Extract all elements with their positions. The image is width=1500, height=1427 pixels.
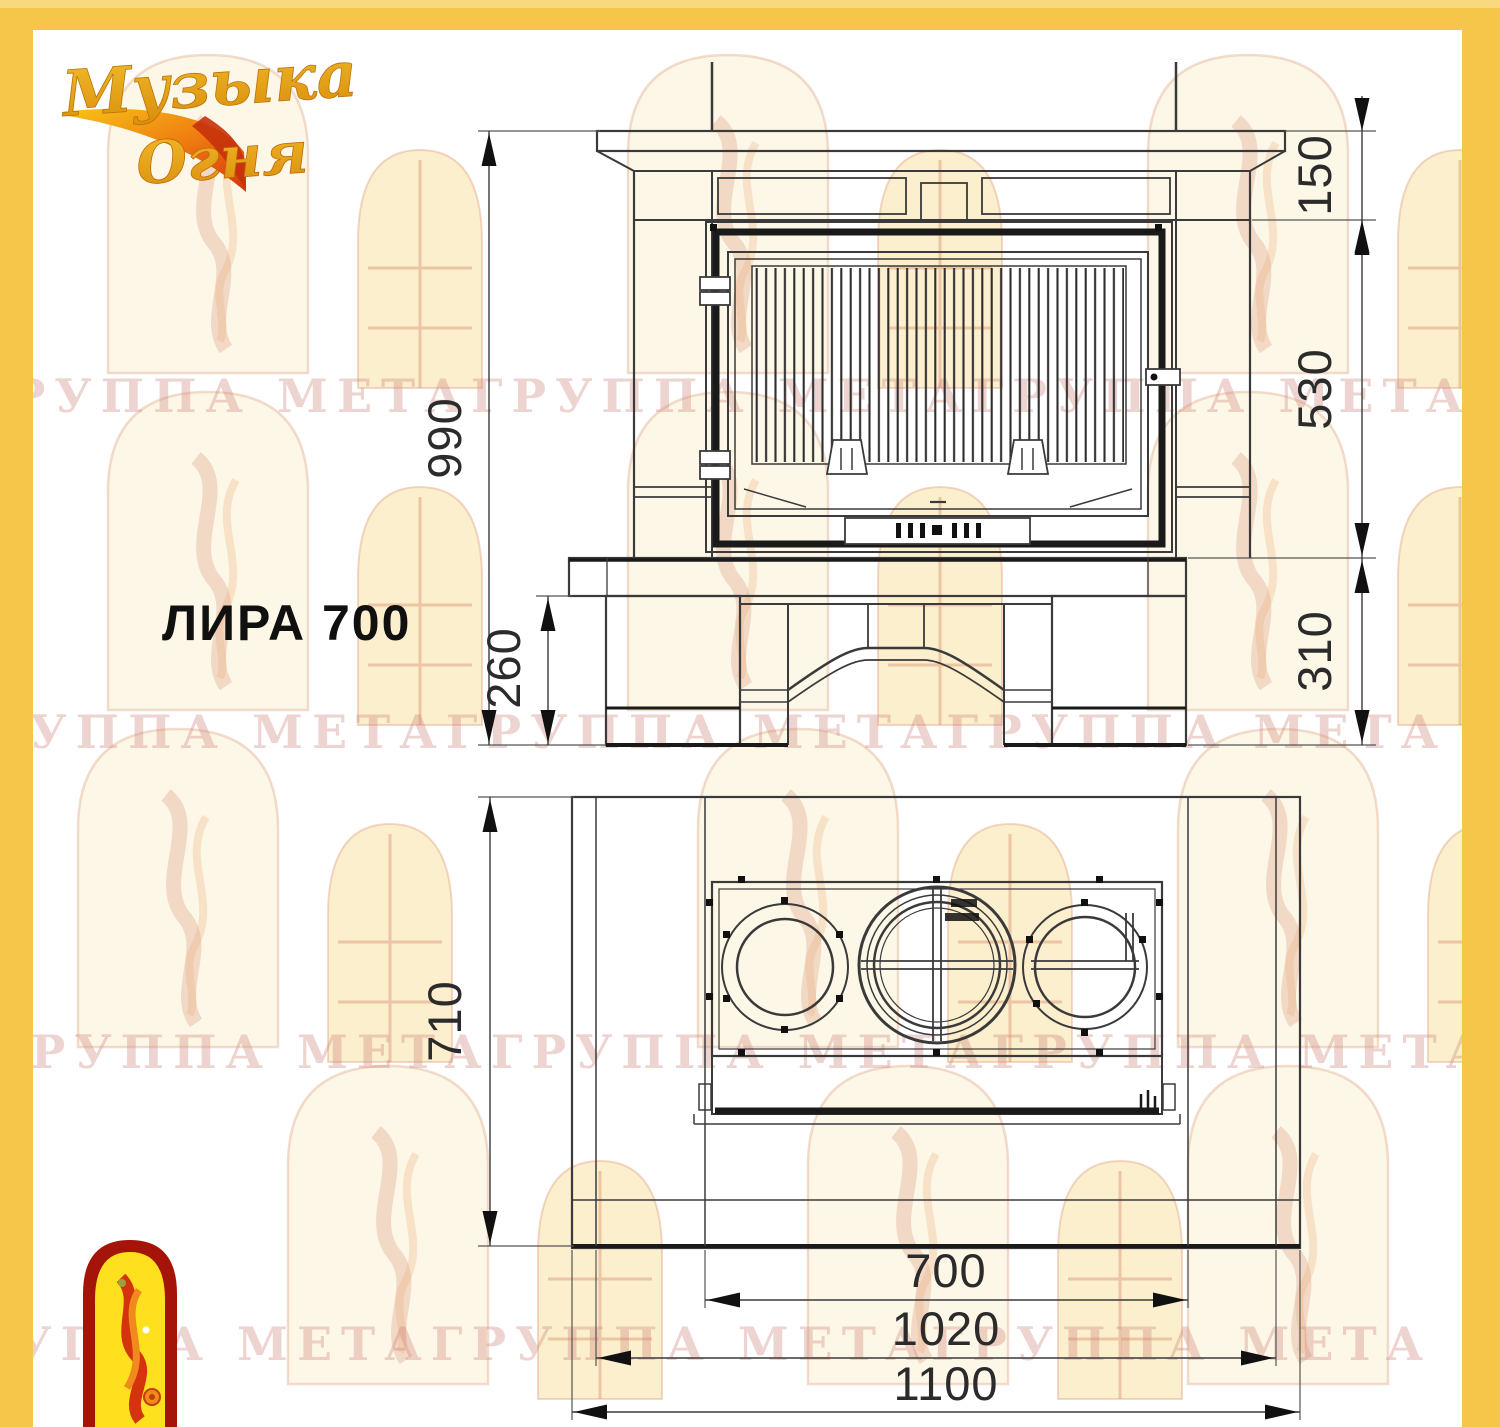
dim-value-990: 990	[418, 397, 471, 478]
dim-value-710: 710	[418, 980, 471, 1061]
door-latch	[1146, 369, 1180, 385]
dim-value-700: 700	[905, 1244, 986, 1297]
dim-value-1020: 1020	[892, 1302, 1001, 1355]
brand-emblem-firebird	[83, 1240, 177, 1427]
dim-value-310: 310	[1288, 610, 1341, 691]
scanned-drawing-page: ГРУППА МЕТАГРУППА МЕТАГРУППА МЕТА ГРУППА…	[0, 0, 1500, 1427]
watermark-text-row: ГРУППА МЕТАГРУППА МЕТАГРУППА МЕТА	[0, 1025, 1492, 1079]
dim-value-1100: 1100	[893, 1357, 998, 1410]
door-grille	[754, 268, 1124, 462]
frame-left-band	[0, 0, 33, 1427]
dim-value-530: 530	[1288, 348, 1341, 429]
vent-strip	[845, 518, 1030, 544]
frame-right-band	[1462, 0, 1500, 1427]
logo-line2: Огня	[134, 118, 310, 198]
watermark-text-row: ГРУППА МЕТАГРУППА МЕТАГРУППА МЕТА	[0, 1317, 1432, 1371]
dim-value-260: 260	[477, 627, 530, 708]
model-title: ЛИРА 700	[162, 595, 411, 651]
watermark-text-row: ГРУППА МЕТАГРУППА МЕТАГРУППА МЕТА	[0, 705, 1447, 759]
technical-drawing-canvas: ГРУППА МЕТАГРУППА МЕТАГРУППА МЕТА ГРУППА…	[0, 0, 1500, 1427]
frame-top-highlight	[0, 0, 1500, 8]
dim-value-150: 150	[1288, 134, 1341, 215]
watermark-text-row: ГРУППА МЕТАГРУППА МЕТАГРУППА МЕТА	[0, 369, 1472, 423]
